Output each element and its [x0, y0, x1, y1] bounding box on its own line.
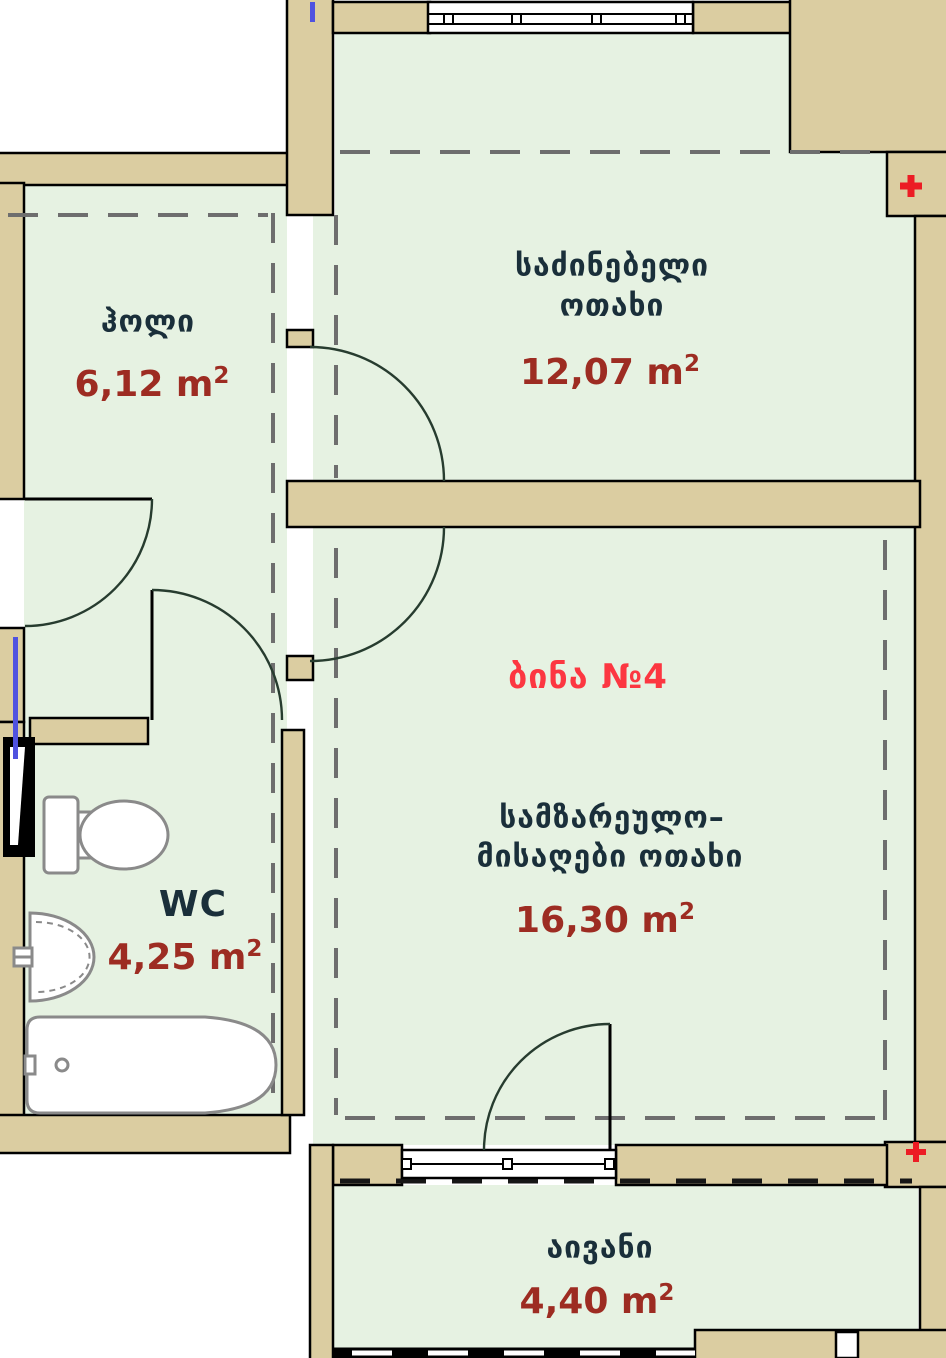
riser-marker-left — [13, 637, 18, 759]
wc-area-sup: 2 — [246, 936, 262, 962]
hall-name: ჰოლი — [101, 306, 195, 338]
left-wall-mid — [0, 628, 24, 722]
door-jamb-bottom — [287, 656, 313, 680]
bedroom-name-line2: ოთახი — [560, 290, 665, 322]
left-wall-upper — [0, 183, 24, 499]
hall-area-sup: 2 — [213, 363, 229, 389]
bedroom-living-divider-wall — [287, 481, 920, 527]
partition-band — [287, 213, 313, 730]
hall-wc-divider-wall — [30, 718, 148, 744]
bedroom-name-line1: საძინებელი — [515, 250, 709, 282]
balcony-area-sup: 2 — [658, 1280, 674, 1306]
bedroom-window — [428, 2, 693, 33]
wc-area-value: 4,25 m — [108, 937, 247, 978]
floor-plan: ჰოლი 6,12 m2 საძინებელი ოთახი 12,07 m2 ბ… — [0, 0, 946, 1358]
toilet — [44, 797, 168, 873]
duct-shaft — [3, 737, 35, 857]
floor-plan-drawing — [0, 0, 946, 1358]
balcony-area-value: 4,40 m — [520, 1281, 659, 1322]
kitchen-living-area: 16,30 m2 — [515, 900, 695, 940]
wc-area: 4,25 m2 — [108, 937, 263, 977]
bedroom-top-wall-right — [693, 2, 792, 33]
balcony-area: 4,40 m2 — [520, 1281, 675, 1321]
balcony-name: აივანი — [546, 1232, 653, 1264]
bedroom-area-value: 12,07 m — [520, 352, 684, 393]
bedroom-area: 12,07 m2 — [520, 352, 700, 392]
door-jamb-top — [287, 330, 313, 347]
balcony-floor — [333, 1185, 918, 1348]
bedroom-area-sup: 2 — [684, 351, 700, 377]
kitchen-living-name-line2: მისაღები ოთახი — [477, 841, 744, 873]
bedroom-top-wall-left — [333, 2, 430, 33]
balcony-left-wall — [310, 1145, 333, 1358]
hall-area-value: 6,12 m — [75, 364, 214, 405]
balcony-wall-notch — [836, 1332, 858, 1358]
bottom-left-wall — [0, 1115, 290, 1153]
hall-top-wall — [0, 153, 290, 185]
bathtub — [25, 1017, 276, 1113]
kitchen-living-area-sup: 2 — [679, 899, 695, 925]
wc-name: WC — [159, 886, 227, 924]
riser-marker-top — [310, 2, 315, 22]
balcony-bottom-right-wall — [695, 1330, 946, 1358]
kitchen-living-name-line1: სამზარეულო– — [499, 802, 725, 834]
top-middle-wall — [287, 0, 333, 215]
kitchen-living-area-value: 16,30 m — [515, 900, 679, 941]
top-right-corner-wall — [790, 0, 946, 152]
hall-area: 6,12 m2 — [75, 364, 230, 404]
balcony-window — [402, 1150, 616, 1178]
wc-right-wall — [282, 730, 304, 1115]
apartment-number: ბინა №4 — [508, 660, 668, 696]
right-wall — [915, 216, 946, 1142]
